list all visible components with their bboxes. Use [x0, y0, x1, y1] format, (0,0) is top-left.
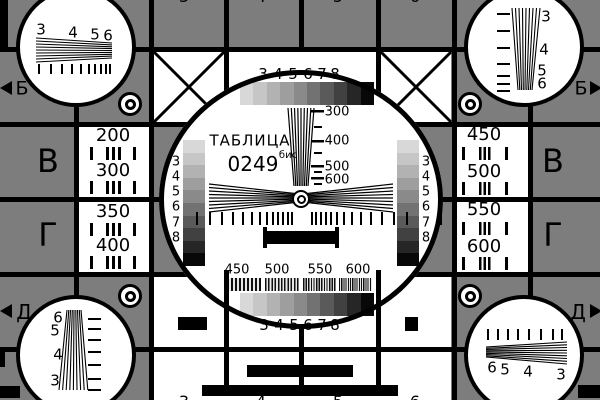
edge-digit: 3 — [179, 0, 189, 5]
left-arrow-icon — [0, 304, 12, 318]
edge-digit: 6 — [410, 0, 420, 5]
fan-label: 3 — [556, 368, 566, 383]
registration-target-icon — [118, 284, 142, 308]
resolution-pattern — [90, 147, 136, 160]
edge-digit: 4 — [256, 0, 266, 5]
grid-seg — [224, 270, 229, 352]
sync-bar-short — [247, 365, 353, 377]
resolution-pattern — [90, 181, 136, 194]
resolution-label: 450 — [467, 126, 501, 144]
black-reference-square — [405, 317, 418, 331]
edge-marker: Г — [38, 219, 58, 251]
black-reference-bar — [178, 317, 207, 330]
fan-ticks-top-left — [34, 62, 114, 76]
fan-top-right — [508, 6, 544, 92]
resolution-pattern — [462, 147, 508, 160]
corner-black-patch — [0, 0, 8, 47]
resolution-pattern — [462, 257, 508, 270]
left-arrow-icon — [0, 81, 12, 95]
grid-seg — [299, 328, 304, 352]
resolution-label: 200 — [96, 127, 130, 145]
resolution-label: 300 — [96, 162, 130, 180]
edge-marker: В — [37, 145, 59, 177]
grid-seg — [376, 270, 381, 352]
edge-marker: Г — [543, 219, 563, 251]
edge-black-bit — [0, 386, 20, 398]
resolution-label: 550 — [467, 201, 501, 219]
fan-top-left — [34, 33, 114, 65]
edge-marker: Д — [16, 302, 32, 322]
resolution-label: 600 — [467, 238, 501, 256]
resolution-pattern — [462, 222, 508, 235]
edge-digit: 4 — [256, 394, 266, 400]
fan-ticks-bottom-right — [483, 327, 567, 341]
edge-digit: 5 — [333, 0, 343, 5]
main-circle-ring — [159, 70, 443, 329]
edge-black-bit — [578, 385, 600, 398]
resolution-label: 500 — [467, 163, 501, 181]
fan-label: 4 — [523, 365, 533, 380]
fan-ticks-bottom-left — [86, 312, 102, 394]
resolution-label: 400 — [96, 237, 130, 255]
resolution-pattern — [90, 256, 136, 269]
grid-seg — [376, 352, 381, 386]
right-arrow-icon — [590, 304, 600, 318]
edge-marker: Б — [574, 80, 587, 99]
grid-seg — [224, 352, 229, 386]
resolution-pattern — [462, 182, 508, 195]
registration-target-icon — [458, 92, 482, 116]
edge-digit: 3 — [179, 394, 189, 400]
registration-target-icon — [458, 284, 482, 308]
edge-digit: 5 — [333, 394, 343, 400]
fan-bottom-right — [484, 340, 569, 366]
right-arrow-icon — [590, 81, 600, 95]
edge-marker: В — [542, 145, 564, 177]
edge-marker: Б — [15, 80, 28, 99]
tv-test-card: 200 300 350 400 450 500 550 600 — [0, 0, 600, 400]
resolution-label: 350 — [96, 203, 130, 221]
fan-ticks-top-right — [495, 8, 511, 94]
edge-digit: 6 — [410, 394, 420, 400]
edge-marker: Д — [570, 302, 586, 322]
edge-black-bit — [0, 347, 5, 367]
sync-bar-long — [202, 385, 398, 396]
registration-target-icon — [118, 92, 142, 116]
